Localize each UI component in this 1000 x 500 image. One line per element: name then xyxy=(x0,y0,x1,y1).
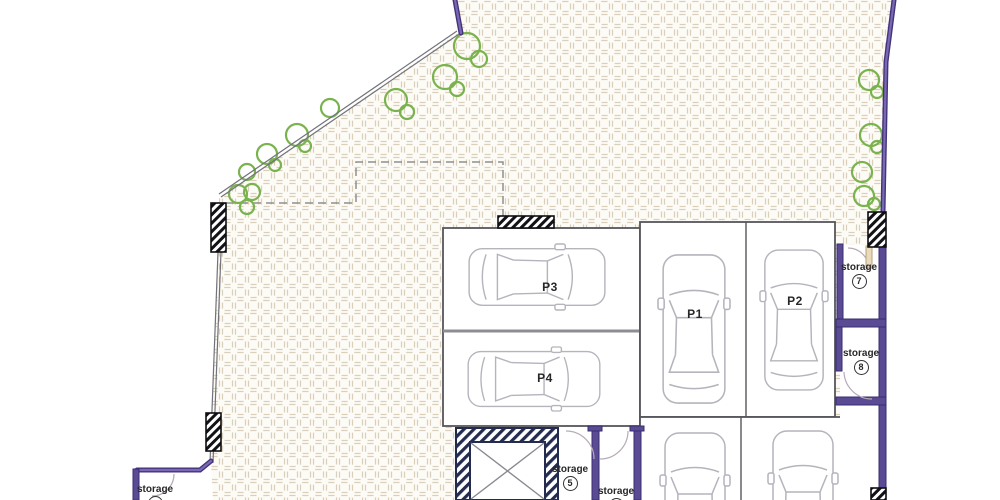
floor-plan-canvas: P3 P4 P1 P2 storage 7 storage 8 storage … xyxy=(0,0,1000,500)
floor-plan-drawing xyxy=(0,0,1000,500)
parking-label-p3: P3 xyxy=(542,280,558,294)
storage-bottom-left-text: storage xyxy=(137,484,173,495)
parking-label-p4: P4 xyxy=(537,371,553,385)
storage-8-text: storage xyxy=(843,348,879,359)
car-p1 xyxy=(658,255,730,403)
storage-7-number: 7 xyxy=(852,274,867,289)
car-p4 xyxy=(468,347,600,411)
storage-mid-text: storage xyxy=(598,486,634,497)
parking-label-p2: P2 xyxy=(787,294,803,308)
storage-8-number: 8 xyxy=(854,360,869,375)
storage-7-label: storage 7 xyxy=(841,262,877,289)
storage-bottom-left-number xyxy=(148,496,163,500)
parking-label-p1: P1 xyxy=(687,307,703,321)
car-p3 xyxy=(469,244,605,310)
storage-5-text: storage xyxy=(552,464,588,475)
storage-mid-label: storage xyxy=(598,486,634,500)
storage-5-number: 5 xyxy=(563,476,578,491)
storage-8-label: storage 8 xyxy=(843,348,879,375)
storage-bottom-left-label: storage xyxy=(137,484,173,500)
elevator-shaft xyxy=(456,428,558,500)
car-p2 xyxy=(760,250,828,390)
storage-5-label: storage 5 xyxy=(552,464,588,491)
car-lower-left xyxy=(660,433,730,500)
car-lower-right xyxy=(768,431,838,500)
storage-7-text: storage xyxy=(841,262,877,273)
